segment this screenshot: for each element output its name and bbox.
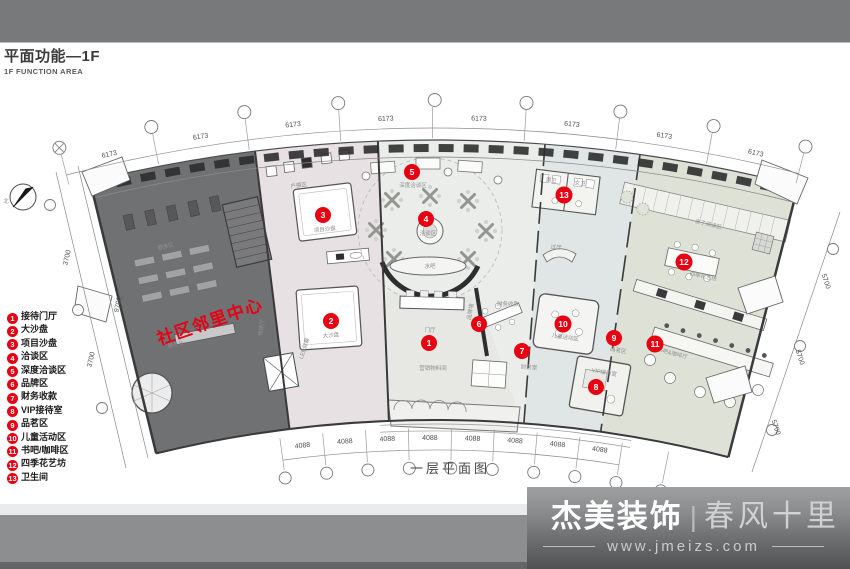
legend-number-badge: 2 (7, 326, 18, 337)
svg-text:6173: 6173 (101, 150, 118, 160)
svg-text:男卫: 男卫 (545, 176, 557, 184)
legend-label: 财务收款 (21, 391, 57, 401)
north-compass: 北 (3, 184, 36, 210)
svg-text:10: 10 (558, 319, 568, 329)
legend-item: 1接待门厅 (7, 310, 69, 323)
floor-plan-drawing: 6173 6173 6173 6173 6173 6173 6173 6173 (0, 0, 850, 569)
legend-number-badge: 13 (7, 473, 18, 484)
svg-text:4088: 4088 (549, 441, 565, 450)
brand-name: 杰美装饰 (551, 501, 683, 532)
svg-text:6: 6 (477, 319, 482, 329)
legend-label: 品茗区 (21, 418, 48, 428)
legend-label: 四季花艺坊 (21, 458, 66, 468)
svg-text:北: 北 (3, 197, 9, 205)
legend-item: 9品茗区 (7, 417, 69, 430)
svg-text:4088: 4088 (294, 442, 310, 451)
brand-slogan: 春风十里 (704, 502, 840, 532)
legend-number-badge: 7 (7, 393, 18, 404)
legend-item: 11书吧/咖啡区 (7, 444, 69, 457)
legend-item: 6品牌区 (7, 377, 69, 390)
svg-text:5700: 5700 (820, 273, 832, 290)
legend-number-badge: 1 (7, 313, 18, 324)
svg-text:3: 3 (321, 210, 326, 220)
legend-item: 2大沙盘 (7, 323, 69, 336)
svg-text:4088: 4088 (379, 436, 395, 444)
legend-item: 10儿童活动区 (7, 431, 69, 444)
legend-item: 4洽谈区 (7, 350, 69, 363)
website-row: www.jmeizs.com (531, 538, 836, 555)
legend-number-badge: 6 (7, 379, 18, 390)
svg-text:3700: 3700 (86, 351, 96, 368)
svg-text:6173: 6173 (192, 132, 209, 141)
svg-text:6173: 6173 (378, 116, 394, 124)
left-dash (543, 546, 595, 547)
legend-item: 12四季花艺坊 (7, 457, 69, 470)
svg-text:财务收款: 财务收款 (497, 300, 520, 308)
svg-text:水吧: 水吧 (424, 262, 436, 270)
brand-panel: 杰美装饰 | 春风十里 www.jmeizs.com (527, 487, 850, 569)
legend-item: 5深度洽谈区 (7, 364, 69, 377)
svg-text:5700: 5700 (794, 349, 806, 366)
svg-text:门厅: 门厅 (424, 326, 436, 334)
svg-text:6173: 6173 (471, 115, 487, 122)
legend-number-badge: 9 (7, 420, 18, 431)
svg-text:8: 8 (594, 382, 599, 392)
svg-text:2: 2 (329, 316, 334, 326)
right-dash (772, 546, 824, 547)
svg-text:4088: 4088 (422, 435, 438, 442)
legend-number-badge: 10 (7, 433, 18, 444)
svg-text:11: 11 (651, 339, 660, 349)
svg-text:6173: 6173 (747, 149, 764, 159)
svg-text:6173: 6173 (656, 132, 673, 141)
svg-text:7: 7 (520, 346, 525, 356)
legend-number-badge: 4 (7, 353, 18, 364)
legend-number-badge: 5 (7, 366, 18, 377)
svg-text:营销物料间: 营销物料间 (419, 364, 447, 372)
legend: 1接待门厅 2大沙盘 3项目沙盘 4洽谈区 5深度洽谈区 6品牌区 7财务收款 … (7, 310, 69, 484)
legend-number-badge: 3 (7, 339, 18, 350)
legend-item: 7财务收款 (7, 390, 69, 403)
svg-text:9: 9 (612, 333, 617, 343)
legend-label: 品牌区 (21, 378, 48, 388)
page: 平面功能—1F 1F FUNCTION AREA (0, 0, 850, 569)
svg-text:5: 5 (410, 167, 415, 177)
legend-item: 3项目沙盘 (7, 337, 69, 350)
brand-row: 杰美装饰 | 春风十里 (551, 501, 840, 532)
legend-label: 大沙盘 (21, 324, 48, 334)
brand-separator: | (690, 503, 697, 531)
svg-text:深度洽谈区: 深度洽谈区 (399, 181, 427, 189)
legend-number-badge: 8 (7, 406, 18, 417)
legend-number-badge: 12 (7, 460, 18, 471)
svg-text:4088: 4088 (507, 437, 523, 445)
legend-item: 13卫生间 (7, 471, 69, 484)
svg-text:1: 1 (427, 338, 432, 348)
svg-text:6173: 6173 (564, 121, 580, 129)
legend-item: 8VIP接待室 (7, 404, 69, 417)
svg-text:4088: 4088 (592, 446, 609, 455)
svg-text:6173: 6173 (285, 121, 301, 129)
svg-text:3700: 3700 (62, 249, 72, 266)
legend-label: VIP接待室 (21, 405, 63, 415)
legend-label: 洽谈区 (21, 351, 48, 361)
svg-text:4088: 4088 (465, 435, 481, 442)
legend-label: 深度洽谈区 (21, 365, 66, 375)
website-url: www.jmeizs.com (607, 538, 760, 555)
svg-text:4088: 4088 (337, 438, 353, 446)
legend-label: 卫生间 (21, 472, 48, 482)
svg-text:洽谈区: 洽谈区 (420, 229, 437, 237)
legend-label: 项目沙盘 (21, 338, 57, 348)
legend-label: 书吧/咖啡区 (21, 445, 69, 455)
svg-text:13: 13 (559, 190, 569, 200)
legend-number-badge: 11 (7, 446, 18, 457)
plan-caption: 一层平面图 (410, 461, 490, 476)
legend-label: 接待门厅 (21, 311, 57, 321)
svg-text:4: 4 (424, 214, 429, 224)
svg-text:12: 12 (679, 257, 689, 267)
legend-label: 儿童活动区 (21, 432, 66, 442)
